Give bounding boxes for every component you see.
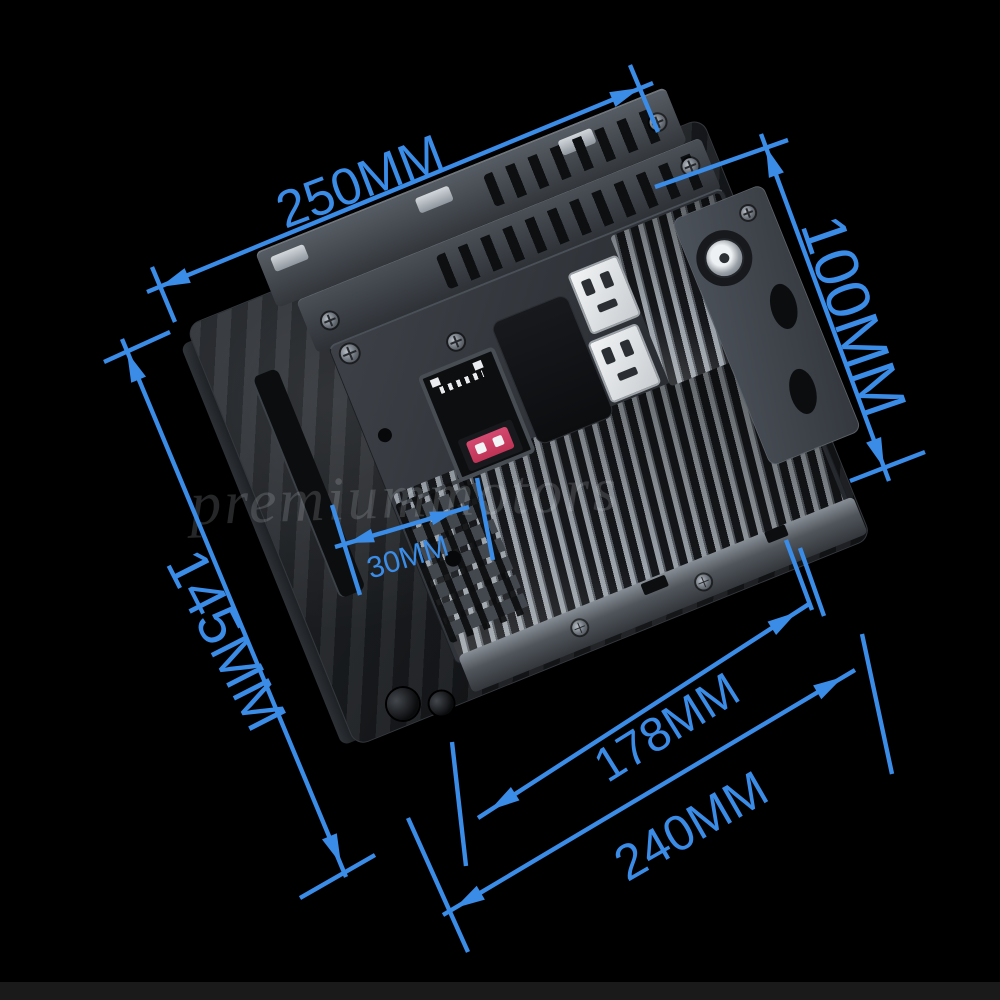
dim-line-240mm	[408, 634, 892, 952]
arrowhead	[429, 511, 456, 525]
product-dimension-photo: premiummotors	[0, 0, 1000, 1000]
arrowhead	[160, 268, 191, 287]
arrowhead	[609, 88, 640, 107]
dimension-overlay	[0, 0, 1000, 1000]
arrowhead	[813, 677, 843, 699]
arrowhead	[866, 437, 884, 468]
arrowhead	[490, 787, 520, 810]
arrowhead	[127, 352, 146, 383]
bottom-strip	[0, 982, 1000, 1000]
arrowhead	[768, 612, 798, 635]
arrowhead	[348, 529, 375, 543]
arrowhead	[322, 833, 341, 864]
dim-line-178mm	[452, 540, 824, 866]
arrowhead	[766, 147, 784, 178]
arrowhead	[455, 886, 485, 908]
dim-line-30mm	[332, 478, 493, 595]
